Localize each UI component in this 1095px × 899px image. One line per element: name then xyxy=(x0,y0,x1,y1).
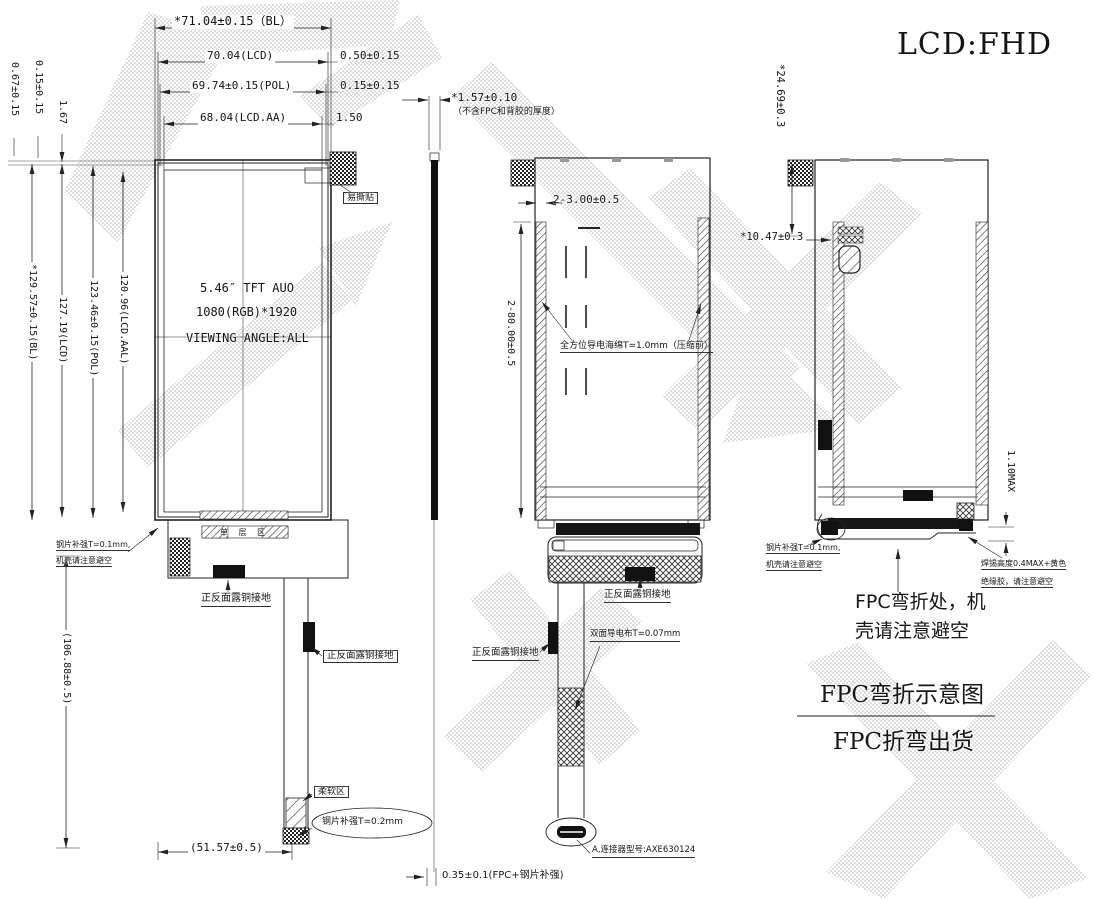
conductive-foam-note: 全方位导电海绵T=1.0mm（压缩前） xyxy=(560,341,713,353)
dim-fpc-width: (51.57±0.5) xyxy=(188,842,265,855)
single-layer-zone-label: 单 层 区 xyxy=(220,528,269,537)
steel-stiffener-note-line1: 钢片补强T=0.1mm, xyxy=(56,540,130,551)
gap-050: 0.50±0.15 xyxy=(340,50,400,63)
dim-fold-width: *10.47±0.3 xyxy=(740,231,803,243)
gap-067-vertical: 0.67±0.15 xyxy=(9,62,21,116)
fold-steel-note-line2: 机壳请注意避空 xyxy=(766,560,822,571)
gap-150: 1.50 xyxy=(336,112,363,125)
dim-holes-height: 2-80.00±0.5 xyxy=(505,300,517,366)
dim-bl-width: *71.04±0.15（BL） xyxy=(172,15,294,29)
dim-aa-width: 68.04(LCD.AA) xyxy=(198,112,288,125)
panel-spec-resolution: 1080(RGB)*1920 xyxy=(196,306,297,320)
dim-aa-height: 120.96(LCD.AAL) xyxy=(118,272,130,366)
dim-thickness: *1.57±0.10 xyxy=(451,92,517,105)
bend-note-line1: FPC弯折处，机 xyxy=(855,592,986,614)
gap-167-vertical: 1.67 xyxy=(57,100,69,124)
thickness-note: （不含FPC和背胶的厚度） xyxy=(453,107,560,117)
dim-pol-width: 69.74±0.15(POL) xyxy=(190,80,293,93)
solder-note-line2: 绝缘胶，请注意避空 xyxy=(981,577,1053,588)
product-title: LCD:FHD xyxy=(897,28,1052,63)
copper-ground-label-back1: 正反面露铜接地 xyxy=(604,590,671,603)
lcd-mechanical-drawing: *71.04±0.15（BL） 70.04(LCD) 0.50±0.15 69.… xyxy=(0,0,1095,899)
dim-holes-width: 2-3.00±0.5 xyxy=(553,194,619,207)
drawing-canvas xyxy=(0,0,1095,899)
dim-bl-height: *129.57±0.15(BL) xyxy=(27,262,39,362)
steel-02-label: 钢片补强T=0.2mm xyxy=(322,817,403,827)
easy-tear-sticker-label: 易撕贴 xyxy=(343,192,378,204)
fold-steel-note-line1: 钢片补强T=0.1mm, xyxy=(766,543,840,554)
copper-ground-label-back2: 正反面露铜接地 xyxy=(472,648,539,661)
dim-fold-height: *24.69±0.3 xyxy=(774,64,786,127)
conductive-cloth-note: 双面导电布T=0.07mm xyxy=(590,630,680,642)
soft-zone-label: 柔软区 xyxy=(314,786,349,798)
fold-caption-top: FPC弯折示意图 xyxy=(820,682,984,708)
connector-model-label: A,连接器型号:AXE630124 xyxy=(592,846,695,858)
copper-ground-label-side: 正反面露铜接地 xyxy=(323,650,398,663)
gap-015: 0.15±0.15 xyxy=(340,80,400,93)
dim-pol-height: 123.46±0.15(POL) xyxy=(88,278,100,378)
dim-lcd-width: 70.04(LCD) xyxy=(205,50,275,63)
dim-110max: 1.10MAX xyxy=(1005,450,1017,492)
gap-015-vertical: 0.15±0.15 xyxy=(33,60,45,114)
solder-note-line1: 焊锡高度0.4MAX+黄色 xyxy=(981,559,1066,570)
copper-ground-label-front: 正反面露铜接地 xyxy=(201,593,271,607)
panel-spec-viewing-angle: VIEWING ANGLE:ALL xyxy=(186,332,309,346)
bend-note-line2: 壳请注意避空 xyxy=(855,621,969,643)
steel-stiffener-note-line2: 机壳请注意避空 xyxy=(56,556,112,567)
dim-fpc-thickness: 0.35±0.1(FPC+钢片补强) xyxy=(442,870,564,882)
dim-fpc-height: (106.88±0.5) xyxy=(61,630,73,706)
panel-spec-size: 5.46″ TFT AUO xyxy=(200,282,294,296)
fold-caption-bottom: FPC折弯出货 xyxy=(833,729,974,755)
dim-lcd-height: 127.19(LCD) xyxy=(57,295,69,365)
